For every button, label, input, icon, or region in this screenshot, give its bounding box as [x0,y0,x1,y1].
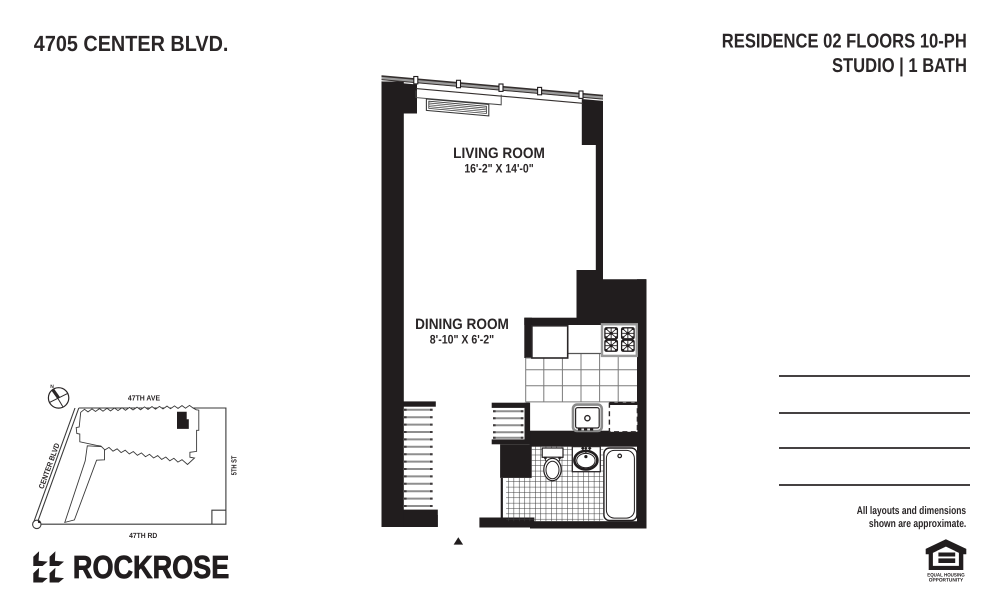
svg-text:RESIDENCE 02 FLOORS 10-PH: RESIDENCE 02 FLOORS 10-PH [722,31,967,53]
svg-text:16'-2" X 14'-0": 16'-2" X 14'-0" [464,161,533,175]
svg-text:4705 CENTER BLVD.: 4705 CENTER BLVD. [34,31,229,56]
svg-text:STUDIO | 1 BATH: STUDIO | 1 BATH [832,55,967,77]
svg-text:5TH ST: 5TH ST [230,455,239,475]
svg-text:47TH AVE: 47TH AVE [128,394,160,403]
svg-text:ROCKROSE: ROCKROSE [73,549,229,584]
svg-text:DINING ROOM: DINING ROOM [415,316,509,333]
svg-text:8'-10" X 6'-2": 8'-10" X 6'-2" [430,333,495,347]
svg-text:N: N [50,384,54,390]
svg-text:LIVING ROOM: LIVING ROOM [453,145,545,162]
svg-text:OPPORTUNITY: OPPORTUNITY [929,578,964,584]
svg-text:All layouts and dimensions: All layouts and dimensions [857,505,966,517]
svg-text:shown are approximate.: shown are approximate. [869,518,966,530]
svg-text:47TH RD: 47TH RD [129,531,158,540]
